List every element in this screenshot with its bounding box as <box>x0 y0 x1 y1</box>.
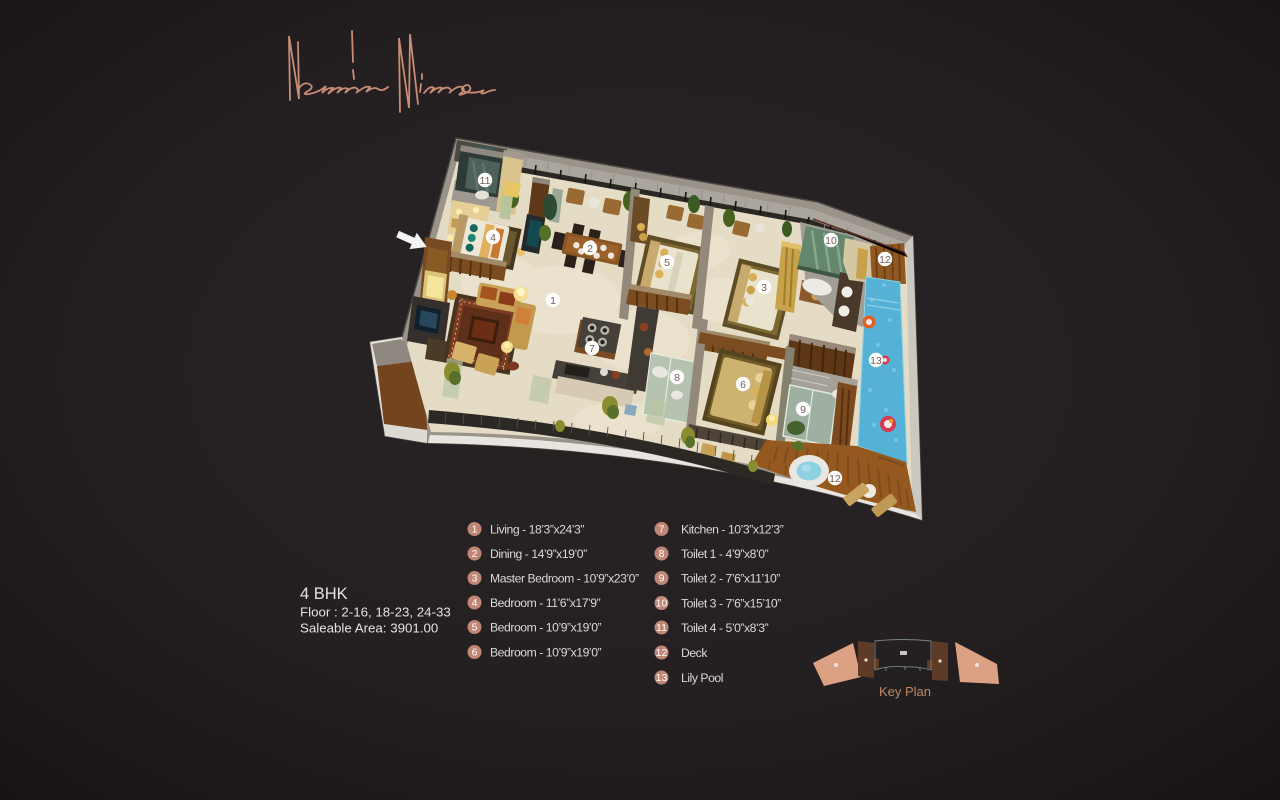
svg-text:Key Plan: Key Plan <box>879 684 931 699</box>
svg-text:1: 1 <box>472 524 478 536</box>
svg-text:Toilet 1 - 4’9”x8’0”: Toilet 1 - 4’9”x8’0” <box>681 547 769 561</box>
svg-text:12: 12 <box>656 647 668 659</box>
svg-text:Kitchen - 10’3”x12’3”: Kitchen - 10’3”x12’3” <box>681 523 784 537</box>
svg-text:Toilet 3 - 7’6”x15’10”: Toilet 3 - 7’6”x15’10” <box>681 597 781 611</box>
svg-text:3: 3 <box>472 573 478 585</box>
svg-text:Lily Pool: Lily Pool <box>681 671 723 685</box>
svg-text:2: 2 <box>472 548 478 560</box>
svg-text:9: 9 <box>800 404 806 416</box>
svg-text:8: 8 <box>659 548 665 560</box>
svg-text:4 BHK: 4 BHK <box>300 585 348 603</box>
svg-text:Bedroom - 10’9”x19’0”: Bedroom - 10’9”x19’0” <box>490 621 602 635</box>
svg-text:7: 7 <box>659 524 665 536</box>
svg-text:5: 5 <box>472 622 478 634</box>
svg-text:4: 4 <box>490 232 496 244</box>
svg-text:12: 12 <box>829 473 841 485</box>
svg-text:10: 10 <box>656 598 668 610</box>
svg-text:7: 7 <box>589 343 595 355</box>
svg-text:6: 6 <box>740 379 746 391</box>
svg-text:13: 13 <box>656 672 668 684</box>
svg-text:2: 2 <box>587 243 593 255</box>
svg-text:Master Bedroom - 10’9”x23’0”: Master Bedroom - 10’9”x23’0” <box>490 572 639 586</box>
svg-text:Dining - 14’9”x19’0”: Dining - 14’9”x19’0” <box>490 547 587 561</box>
svg-text:Toilet 2 - 7’6”x11’10”: Toilet 2 - 7’6”x11’10” <box>681 572 780 586</box>
svg-text:5: 5 <box>664 257 670 269</box>
svg-text:13: 13 <box>870 355 882 367</box>
svg-text:12: 12 <box>879 254 891 266</box>
svg-text:Saleable Area: 3901.00: Saleable Area: 3901.00 <box>300 621 438 636</box>
svg-text:Bedroom - 11’6”x17’9”: Bedroom - 11’6”x17’9” <box>490 596 601 610</box>
svg-text:8: 8 <box>674 372 680 384</box>
svg-text:Living - 18’3”x24’3”: Living - 18’3”x24’3” <box>490 523 584 537</box>
svg-text:4: 4 <box>472 597 478 609</box>
svg-text:Toilet 4 - 5’0”x8’3”: Toilet 4 - 5’0”x8’3” <box>681 621 769 635</box>
svg-text:10: 10 <box>825 235 837 247</box>
svg-text:1: 1 <box>550 295 556 307</box>
svg-text:9: 9 <box>659 573 665 585</box>
svg-text:Deck: Deck <box>681 646 708 660</box>
svg-text:Floor : 2-16, 18-23, 24-33: Floor : 2-16, 18-23, 24-33 <box>300 605 451 620</box>
svg-text:6: 6 <box>472 647 478 659</box>
svg-text:Bedroom - 10’9”x19’0”: Bedroom - 10’9”x19’0” <box>490 646 602 660</box>
svg-text:11: 11 <box>656 622 667 634</box>
svg-text:3: 3 <box>761 282 767 294</box>
svg-text:11: 11 <box>480 175 491 187</box>
